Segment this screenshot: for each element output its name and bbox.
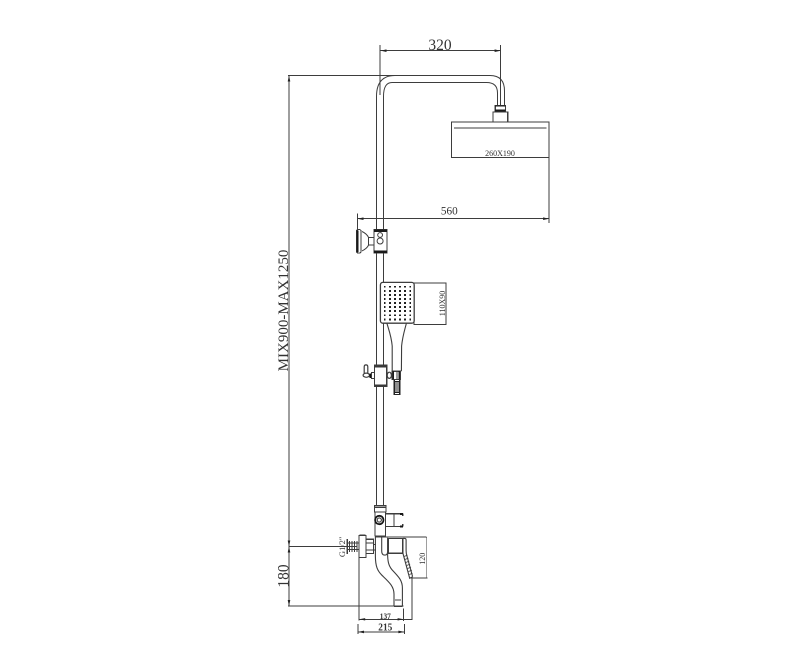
- svg-text:G1/2″: G1/2″: [337, 536, 347, 557]
- svg-text:215: 215: [378, 622, 392, 633]
- svg-text:137: 137: [380, 612, 391, 621]
- svg-text:560: 560: [441, 205, 458, 217]
- svg-text:120: 120: [418, 553, 427, 565]
- svg-text:260X190: 260X190: [485, 149, 515, 158]
- svg-text:180: 180: [275, 564, 292, 588]
- svg-text:MIX900-MAX1250: MIX900-MAX1250: [276, 250, 292, 372]
- svg-text:320: 320: [428, 37, 452, 54]
- svg-text:110X90: 110X90: [438, 291, 447, 316]
